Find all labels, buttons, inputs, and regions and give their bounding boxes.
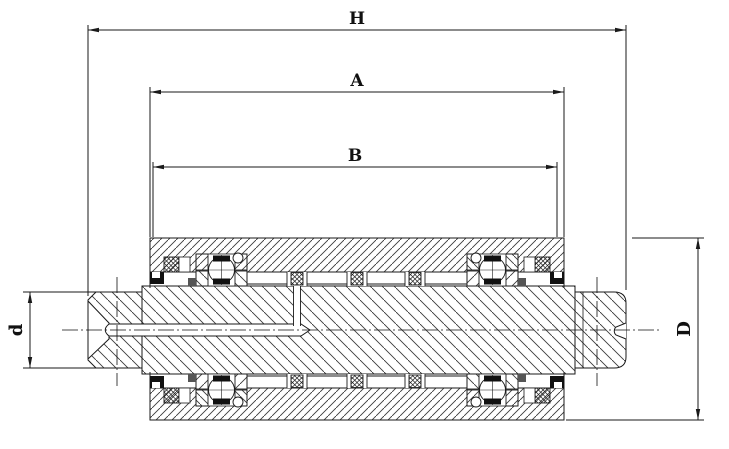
arrowhead	[546, 165, 557, 169]
bearing-unit-bottom-left	[150, 374, 247, 407]
arrowhead	[153, 165, 164, 169]
arrowhead	[150, 90, 161, 94]
arrowhead	[553, 90, 564, 94]
dim-label-D: D	[674, 321, 695, 337]
dimension-d: d	[6, 292, 97, 368]
shaft	[88, 285, 626, 374]
arrowhead	[696, 238, 700, 249]
bearing-unit-bottom-right	[467, 374, 564, 407]
dim-label-d: d	[6, 323, 27, 336]
arrowhead	[28, 292, 32, 303]
dimension-B: B	[153, 146, 557, 237]
arrowhead	[696, 409, 700, 420]
spacer-ring	[188, 278, 196, 286]
dim-label-A: A	[349, 71, 364, 91]
bearing-unit	[150, 253, 247, 286]
dim-label-H: H	[349, 9, 365, 29]
arrowhead	[615, 28, 626, 32]
drawing-canvas: H A B d D	[0, 0, 729, 449]
seal-spacer	[179, 257, 190, 272]
arrowhead	[28, 357, 32, 368]
ball-retainer	[213, 256, 230, 262]
felt-seal	[164, 257, 179, 272]
bearing-unit-top-right	[467, 253, 564, 286]
radial-grease-hole-fill	[294, 285, 301, 326]
snap-ring	[233, 253, 243, 263]
drawing-sheet: H A B d D	[0, 0, 729, 449]
dim-label-B: B	[348, 146, 362, 166]
ball-retainer	[213, 279, 230, 285]
arrowhead	[88, 28, 99, 32]
